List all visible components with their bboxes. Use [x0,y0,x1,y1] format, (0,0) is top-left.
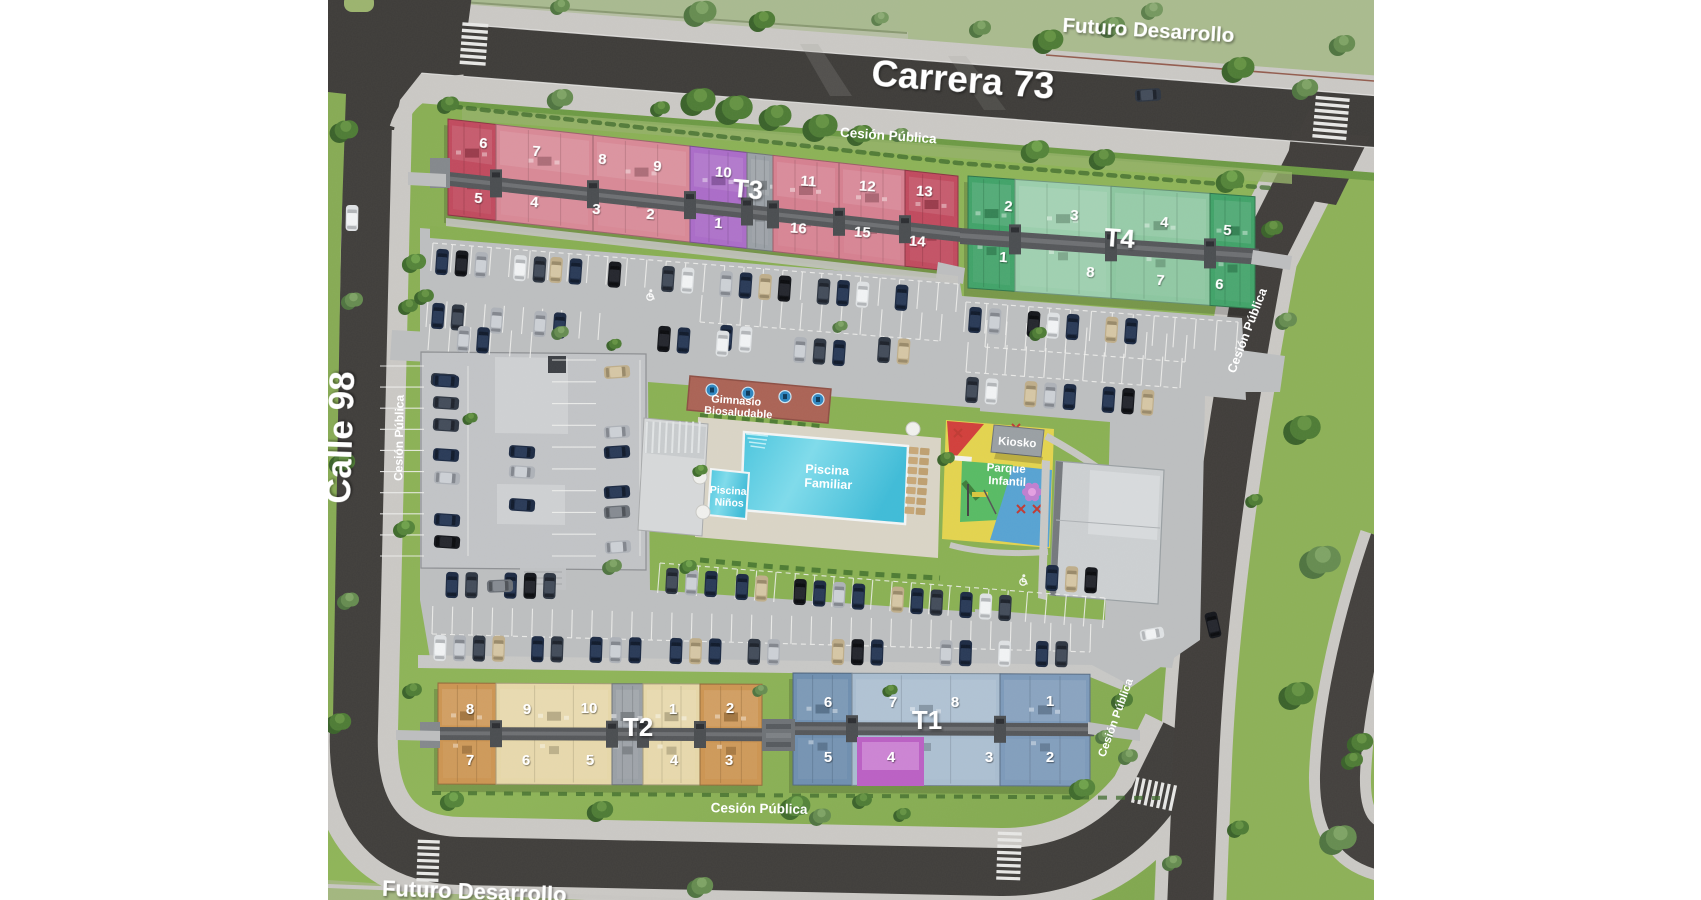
svg-text:6: 6 [824,694,832,711]
svg-text:7: 7 [532,143,542,161]
svg-text:6: 6 [1215,276,1225,294]
svg-text:8: 8 [951,694,959,711]
svg-text:8: 8 [466,701,474,718]
svg-text:10: 10 [581,700,598,717]
svg-text:5: 5 [824,749,832,766]
svg-text:4: 4 [670,752,679,769]
svg-text:5: 5 [474,190,484,208]
svg-text:1: 1 [714,215,724,233]
svg-text:9: 9 [653,158,663,176]
svg-text:2: 2 [1046,749,1054,766]
svg-text:Cesión Pública: Cesión Pública [711,800,809,817]
svg-text:1: 1 [669,701,677,718]
svg-text:6: 6 [522,752,530,769]
svg-text:15: 15 [853,223,871,241]
svg-text:Cesión Pública: Cesión Pública [391,394,407,481]
svg-text:Niños: Niños [714,496,744,510]
svg-text:7: 7 [1156,272,1166,290]
svg-text:3: 3 [592,201,602,219]
svg-text:T1: T1 [912,705,942,735]
svg-text:14: 14 [908,232,926,250]
svg-text:3: 3 [1070,207,1080,225]
svg-text:10: 10 [714,163,732,181]
svg-text:T2: T2 [623,712,653,742]
svg-text:Familiar: Familiar [804,476,853,492]
svg-text:4: 4 [887,749,896,766]
svg-text:8: 8 [598,151,608,169]
svg-text:11: 11 [800,172,817,190]
svg-text:8: 8 [1086,264,1096,282]
svg-text:2: 2 [726,700,734,717]
svg-text:T3: T3 [731,173,764,206]
svg-text:1: 1 [999,249,1009,267]
svg-text:3: 3 [985,749,993,766]
svg-text:5: 5 [1223,222,1233,240]
svg-text:2: 2 [1004,198,1014,216]
svg-text:Infantil: Infantil [988,475,1026,489]
svg-text:5: 5 [586,752,594,769]
svg-text:9: 9 [523,701,531,718]
svg-text:7: 7 [466,752,474,769]
svg-text:3: 3 [725,752,733,769]
svg-text:12: 12 [858,177,876,195]
svg-text:2: 2 [646,206,656,224]
svg-text:T4: T4 [1103,222,1136,254]
svg-text:16: 16 [789,219,807,237]
svg-text:7: 7 [889,694,897,711]
svg-text:Parque: Parque [986,462,1026,476]
svg-text:6: 6 [479,135,489,153]
svg-text:13: 13 [915,182,933,200]
svg-text:1: 1 [1046,693,1054,710]
